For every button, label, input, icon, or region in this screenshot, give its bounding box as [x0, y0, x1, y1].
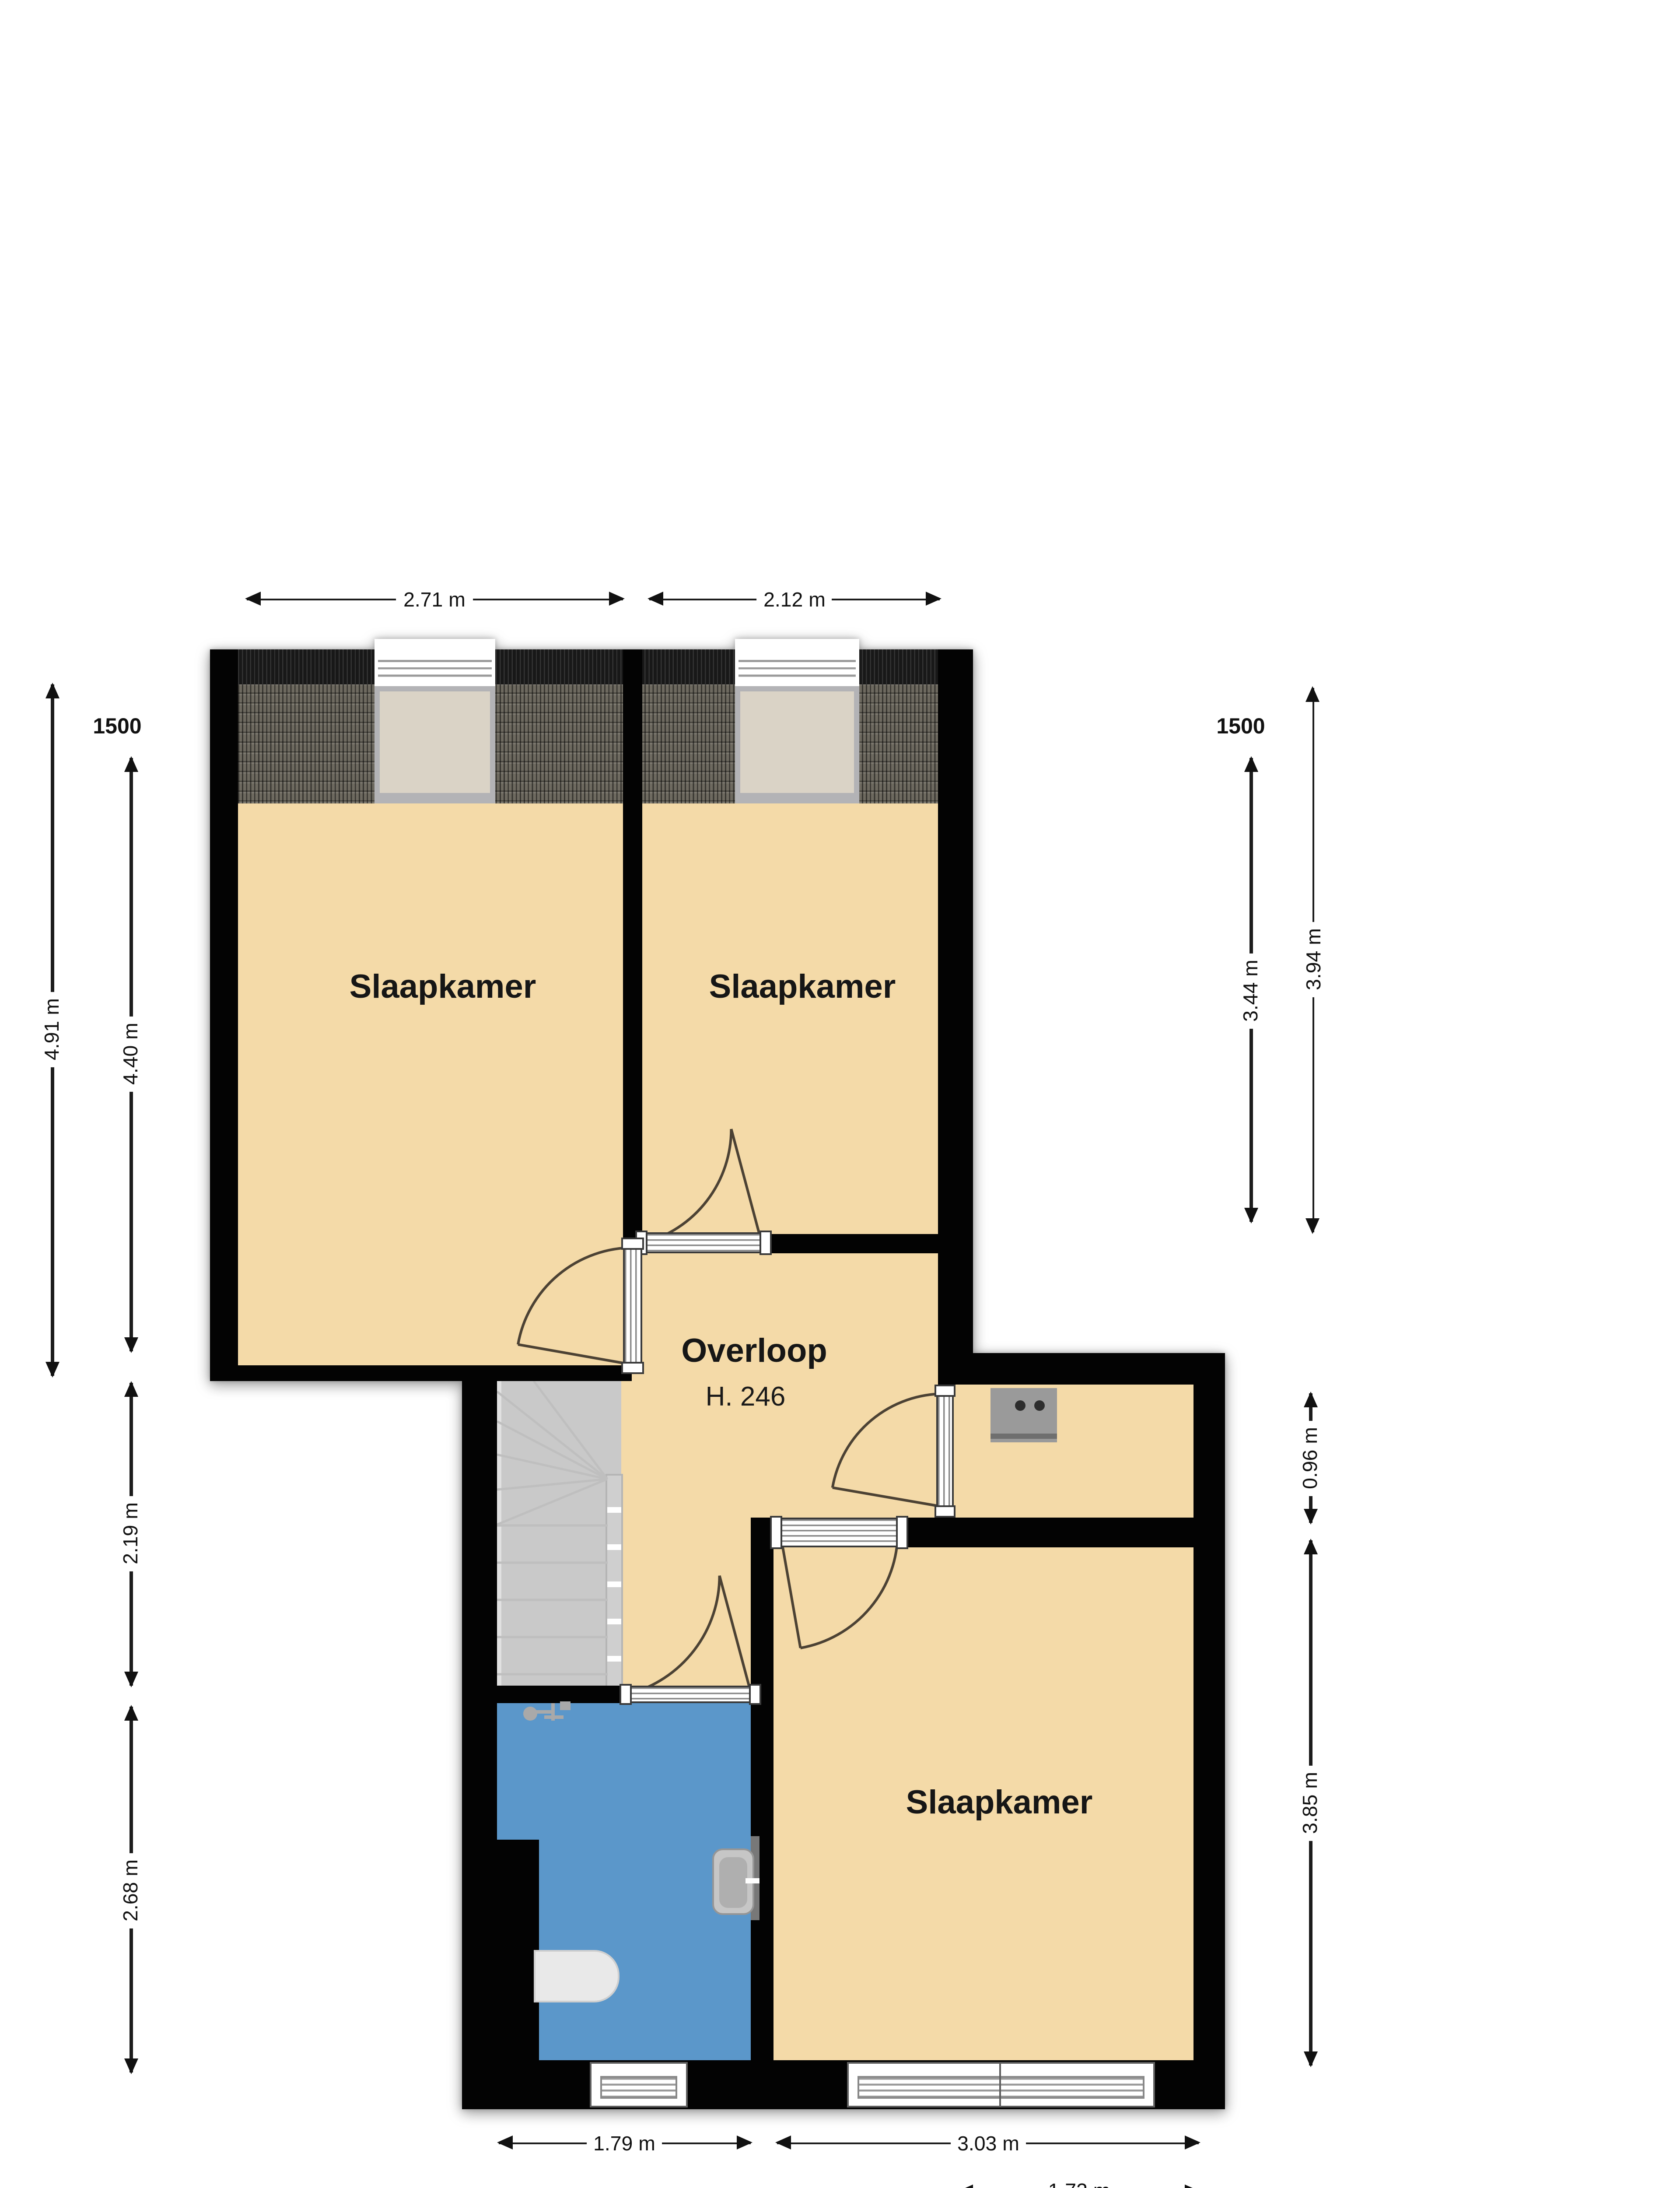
wall-closet-top [938, 1353, 1225, 1384]
bathtub-icon [534, 1950, 619, 2002]
dimension-bottom-bedroom: 3.03 m [776, 2133, 1201, 2154]
wall-between-top-bedrooms [623, 649, 641, 1248]
arrowhead-right-icon [1185, 2135, 1201, 2149]
dimension-left-inner: 4.40 m [121, 757, 142, 1352]
arrowhead-up-icon [45, 683, 59, 698]
boiler-knob [1015, 1399, 1025, 1410]
dimension-label: 2.12 m [756, 588, 833, 611]
dimension-label: 1.72 m [1041, 2181, 1117, 2188]
dimension-left-bathroom: 2.68 m [121, 1705, 142, 2074]
arrowhead-up-icon [1303, 1539, 1317, 1555]
wall-bathroom-notch [495, 1839, 539, 2059]
dimension-label: 2.71 m [396, 588, 472, 611]
door-bedroom-top-right [644, 1232, 762, 1254]
room-height-label-landing: H. 246 [614, 1382, 877, 1413]
dimension-bottom-window: 1.72 m [957, 2181, 1201, 2188]
wall-outer-left-bottom [462, 1365, 496, 2108]
door-bathroom [629, 1685, 751, 1703]
dimension-top-left-room: 2.71 m [244, 589, 625, 610]
room-label-bedroom-top-left: Slaapkamer [303, 969, 583, 1007]
floor-plan [0, 0, 1680, 2188]
dimension-label: 4.40 m [120, 1017, 143, 1093]
wall-bathroom-bedroom-separator [751, 1517, 773, 2059]
dimension-label: 1.79 m [586, 2132, 662, 2155]
arrowhead-down-icon [123, 1671, 137, 1687]
boiler-knob [1033, 1399, 1044, 1410]
arrowhead-up-icon [123, 1381, 137, 1397]
dimension-right-bedroom: 3.85 m [1300, 1539, 1321, 2067]
boiler-base [990, 1434, 1056, 1438]
door-closet [936, 1394, 953, 1507]
door-bedroom-bottom [780, 1517, 898, 1547]
toilet-bowl [720, 1856, 747, 1907]
arrowhead-right-icon [609, 592, 625, 606]
wall-bedroom-top-left-bottom [210, 1365, 631, 1382]
room-label-bedroom-top-right: Slaapkamer [649, 969, 955, 1007]
arrowhead-left-icon [647, 592, 663, 606]
dimension-left-outer: 4.91 m [42, 683, 63, 1377]
dimension-left-landing: 2.19 m [121, 1381, 142, 1687]
dimension-right-inner: 3.44 m [1241, 756, 1262, 1224]
dimension-label: 0.96 m [1299, 1420, 1322, 1497]
arrowhead-down-icon [1303, 1509, 1317, 1525]
arrowhead-up-icon [1305, 686, 1319, 701]
boiler-unit-icon [990, 1388, 1056, 1442]
stair-tread-lines [497, 1381, 608, 1674]
arrowhead-up-icon [1303, 1392, 1317, 1407]
arrowhead-left-icon [497, 2135, 513, 2149]
ceiling-height-marker-right: 1500 [1204, 714, 1277, 739]
arrowhead-right-icon [1185, 2184, 1201, 2188]
arrowhead-up-icon [123, 757, 137, 772]
dimension-label: 3.85 m [1299, 1765, 1322, 1841]
window-frame-lines [600, 2075, 676, 2098]
bedroom-window-icon [846, 2061, 1155, 2107]
room-label-bedroom-bottom: Slaapkamer [859, 1785, 1139, 1823]
dimension-label: 3.44 m [1240, 952, 1263, 1028]
dimension-top-right-room: 2.12 m [647, 589, 941, 610]
arrowhead-up-icon [1244, 756, 1258, 772]
arrowhead-down-icon [45, 1361, 59, 1377]
arrowhead-down-icon [1303, 2051, 1317, 2067]
arrowhead-left-icon [957, 2184, 973, 2188]
wall-bathroom-top [494, 1685, 629, 1702]
shower-head [560, 1701, 570, 1710]
dimension-label: 4.91 m [41, 992, 64, 1068]
shower-mixer-horizontal [543, 1715, 563, 1719]
dimension-right-closet: 0.96 m [1300, 1392, 1321, 1525]
bathroom-window-icon [589, 2061, 687, 2107]
arrowhead-down-icon [1305, 1218, 1319, 1234]
arrowhead-down-icon [123, 2058, 137, 2074]
arrowhead-up-icon [123, 1705, 137, 1721]
window-divider [999, 2063, 1001, 2106]
arrowhead-down-icon [123, 1336, 137, 1352]
wall-outer-left-top [210, 649, 238, 1381]
wall-outer-right [1194, 1353, 1225, 2108]
arrowhead-left-icon [776, 2135, 791, 2149]
arrowhead-down-icon [1244, 1208, 1258, 1224]
ceiling-height-marker-left: 1500 [80, 714, 154, 739]
dimension-label: 3.94 m [1302, 922, 1325, 998]
dimension-bottom-bathroom: 1.79 m [497, 2133, 752, 2154]
dimension-label: 2.68 m [120, 1852, 143, 1928]
room-label-landing: Overloop [614, 1334, 894, 1372]
arrowhead-right-icon [926, 592, 941, 606]
floorplan-page: Slaapkamer Slaapkamer Overloop H. 246 Sl… [0, 0, 1680, 2188]
wall-bedroom-top-right-bottom [762, 1233, 938, 1253]
toilet-flush-pipe [745, 1878, 759, 1883]
arrowhead-left-icon [244, 592, 260, 606]
dimension-right-outer: 3.94 m [1303, 686, 1324, 1234]
dimension-label: 3.03 m [950, 2132, 1026, 2155]
wall-bedroom-bottom-top-right [898, 1517, 1194, 1547]
dimension-label: 2.19 m [120, 1496, 143, 1572]
plan-linework [0, 0, 1680, 2188]
arrowhead-right-icon [736, 2135, 752, 2149]
